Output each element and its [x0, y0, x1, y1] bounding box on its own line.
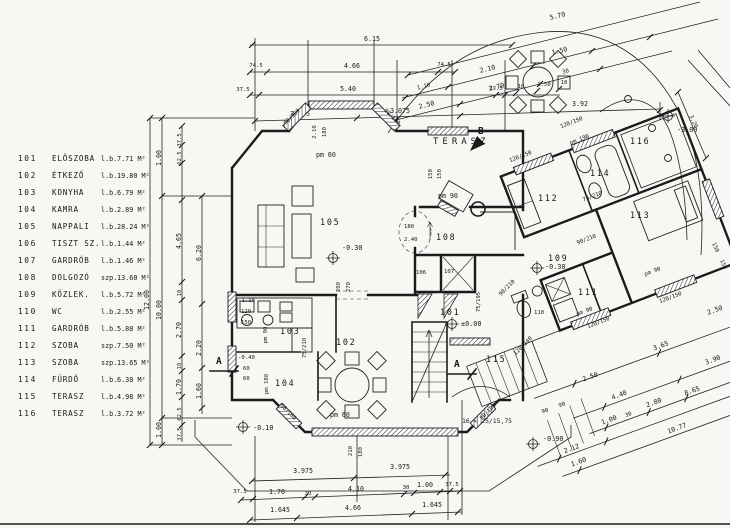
- dim-br: 2.80: [645, 396, 663, 409]
- window: [702, 179, 724, 219]
- room-label-114: 114: [590, 168, 611, 178]
- win-label: 2.10: [312, 125, 318, 138]
- dim-v-total: 12.00: [143, 290, 151, 310]
- legend-num: 104: [18, 205, 37, 214]
- window: [228, 292, 236, 322]
- dim-v: 37.5: [177, 427, 183, 440]
- legend-type: l.b.: [101, 223, 117, 231]
- legend-num: 114: [18, 375, 37, 384]
- room-label-108: 108: [436, 232, 457, 242]
- legend-area: 1.44 M²: [117, 240, 146, 248]
- chair: [510, 97, 527, 114]
- legend-type: l.b.: [101, 189, 117, 197]
- legend-num: 107: [18, 256, 37, 265]
- win-label: pm 60: [330, 411, 350, 419]
- dim-diag: 30: [562, 68, 570, 75]
- appliance: [258, 301, 270, 312]
- dim-top: 5.40: [340, 85, 356, 93]
- sink-bowl: [263, 315, 273, 325]
- dim-bot: 37.5: [445, 482, 458, 488]
- legend-num: 110: [18, 307, 37, 316]
- dim-br: 3.90: [704, 354, 722, 367]
- window: [312, 428, 458, 436]
- dim-v: 62.5: [177, 407, 183, 420]
- main-staircase: [412, 322, 447, 402]
- legend-type: l.b.: [101, 172, 117, 180]
- win-label: 180: [358, 447, 364, 457]
- section-mark-b: B: [478, 126, 484, 137]
- level-mid: -0.30: [545, 263, 565, 271]
- coffee-table: [292, 214, 311, 258]
- fence-post: [665, 155, 672, 162]
- level-symbol: [526, 437, 540, 451]
- dim-v: 1.60: [195, 383, 203, 399]
- legend-area: 3.72 M²: [117, 410, 146, 418]
- dim-br: 1.60: [570, 456, 588, 469]
- legend-num: 106: [18, 239, 37, 248]
- dim-v: 6.20: [195, 245, 203, 261]
- legend-name: KONYHA: [52, 188, 84, 197]
- fence-post: [625, 96, 632, 103]
- sofa: [258, 205, 284, 267]
- legend-type: l.b.: [101, 308, 117, 316]
- legend-name: NAPPALI: [52, 222, 90, 231]
- dim-bot: 4.66: [345, 504, 361, 512]
- room-label-107: 107: [444, 269, 454, 275]
- stair-note: 16 × 25/15,75: [462, 417, 512, 425]
- dim-bot: 1.00: [417, 481, 433, 489]
- room-legend: 101ELŐSZOBAl.b.7.71 M² 102ÉTKEZŐl.b.19.8…: [18, 154, 150, 418]
- legend-type: l.b.: [101, 240, 117, 248]
- dim-v: 1.00: [155, 422, 163, 438]
- legend-num: 103: [18, 188, 37, 197]
- win-label: 120: [241, 309, 251, 315]
- legend-type: l.b.: [101, 257, 117, 265]
- dim-v: 37.5: [177, 133, 183, 146]
- dim-br: 2.50: [581, 370, 599, 383]
- dim-bot: 1.645: [422, 501, 442, 509]
- dim-top: 37.5: [236, 87, 249, 93]
- room-label-103: 103: [280, 326, 301, 336]
- chair: [531, 51, 544, 63]
- legend-name: ÉTKEZŐ: [52, 171, 84, 180]
- legend-name: GARDRÓB: [52, 256, 90, 265]
- armchair: [296, 268, 314, 282]
- section-mark-a: A: [216, 356, 222, 367]
- legend-area: 5.72 M²: [117, 291, 146, 299]
- desk-108: [480, 212, 515, 250]
- dim-diag: 5.70: [549, 10, 566, 22]
- chair: [345, 352, 359, 365]
- room-label-109: 109: [548, 253, 569, 263]
- column: [471, 202, 485, 216]
- legend-area: 2.55 M²: [117, 308, 146, 316]
- door-label: 75/210: [302, 338, 308, 358]
- dim-br: 10.77: [666, 421, 687, 435]
- level-zero: ±0.00: [461, 320, 481, 328]
- dim-bot: 37.5: [233, 489, 246, 495]
- dim-br: 2.50: [706, 304, 724, 317]
- opening-label: 270: [346, 282, 352, 292]
- legend-type: szp.: [101, 342, 117, 350]
- level-window: -0.40: [238, 355, 255, 361]
- legend-type: l.b.: [101, 376, 117, 384]
- legend-area: 7.71 M²: [117, 155, 146, 163]
- level-window: -1.10: [238, 298, 255, 304]
- win-label: 60: [243, 376, 250, 382]
- legend-area: 6.79 M²: [117, 189, 146, 197]
- window: [228, 346, 236, 372]
- dim-bot: 1.70: [269, 488, 285, 496]
- dim-top: 10: [561, 80, 568, 86]
- dim-bot: 3.975: [390, 463, 410, 471]
- chair: [550, 97, 567, 114]
- round-table: [335, 368, 369, 402]
- dim-top: 74.5: [249, 63, 262, 69]
- dimension-chain-bottom-right: 3.65 3.90 3.90 4.40 2.80 8.65 1.00 30 2.…: [507, 259, 730, 486]
- legend-name: TISZT SZ.: [52, 239, 100, 248]
- dim-bot: 30: [403, 485, 410, 491]
- legend-type: szp.: [101, 274, 117, 282]
- dim-v: 4.65: [175, 233, 183, 249]
- legend-name: TERASZ: [52, 409, 84, 418]
- level-symbol: [530, 261, 544, 275]
- legend-area: 13.60 M²: [117, 274, 150, 282]
- chair: [506, 76, 518, 89]
- dim-opening: 180: [404, 224, 414, 230]
- legend-area: 4.98 M²: [117, 393, 146, 401]
- room-label-112: 112: [538, 193, 559, 203]
- dining-table-group: [317, 352, 386, 419]
- legend-area: 19.80 M²: [117, 172, 150, 180]
- sink: [280, 302, 292, 311]
- floor-plan-drawing: 101ELŐSZOBAl.b.7.71 M² 102ÉTKEZŐl.b.19.8…: [0, 0, 730, 528]
- legend-area: 2.89 M²: [117, 206, 146, 214]
- legend-num: 108: [18, 273, 37, 282]
- dim-v: 2.70: [175, 322, 183, 338]
- legend-name: KAMRA: [52, 205, 79, 214]
- dim-diag: 2.50: [418, 99, 435, 111]
- legend-type: l.b.: [101, 393, 117, 401]
- section-mark-a2-line: [448, 369, 476, 379]
- win-label: 150: [428, 169, 434, 179]
- chair: [531, 100, 544, 112]
- win-label: 120/150: [560, 116, 584, 130]
- legend-num: 113: [18, 358, 37, 367]
- floor-plan-sheet: 101ELŐSZOBAl.b.7.71 M² 102ÉTKEZŐl.b.19.8…: [0, 0, 730, 528]
- legend-num: 101: [18, 154, 37, 163]
- level-entry: -0.10: [253, 424, 273, 432]
- legend-area: 5.88 M²: [117, 325, 146, 333]
- chair: [510, 51, 527, 68]
- dim-v: 10: [177, 363, 183, 370]
- legend-type: l.b.: [101, 291, 117, 299]
- level-symbol: [326, 251, 340, 265]
- legend-type: l.b.: [101, 206, 117, 214]
- legend-num: 112: [18, 341, 37, 350]
- dim-bot: 4.10: [348, 485, 364, 493]
- dim-br: 90: [541, 407, 549, 415]
- legend-area: 6.30 M²: [117, 376, 146, 384]
- shelf: [553, 298, 578, 322]
- room-label-116: 116: [630, 136, 651, 146]
- door-label: pm 180: [264, 374, 270, 394]
- legend-num: 116: [18, 409, 37, 418]
- legend-num: 115: [18, 392, 37, 401]
- opening-label: 200: [336, 282, 342, 292]
- legend-type: szp.: [101, 359, 117, 367]
- door-leaf: [418, 294, 432, 318]
- dim-top: 4.66: [344, 62, 360, 70]
- level-living: -0.30: [342, 244, 362, 252]
- win-label: 60: [243, 366, 250, 372]
- sink: [280, 313, 292, 322]
- fence-post: [649, 125, 656, 132]
- legend-num: 111: [18, 324, 37, 333]
- room-label-102: 102: [336, 337, 357, 347]
- level-marks: [236, 109, 675, 451]
- dim-br: 90: [558, 401, 566, 409]
- legend-type: l.b.: [101, 155, 117, 163]
- legend-name: SZOBA: [52, 341, 79, 350]
- win-label: pm 90: [644, 266, 662, 278]
- window: [428, 127, 468, 135]
- legend-num: 102: [18, 171, 37, 180]
- entry-canopy: [452, 387, 510, 398]
- legend-name: WC: [52, 307, 63, 316]
- win-label: 150: [437, 169, 443, 179]
- room-label-105: 105: [320, 217, 341, 227]
- window: [309, 101, 374, 109]
- dim-bot: 3.975: [293, 467, 313, 475]
- door-label: 90/210: [576, 234, 597, 247]
- legend-name: SZOBA: [52, 358, 79, 367]
- chair: [368, 352, 386, 370]
- level-symbol: [236, 420, 250, 434]
- win-label: 180: [322, 127, 328, 137]
- dim-site: 150: [710, 242, 720, 254]
- arched-opening: [399, 211, 431, 253]
- legend-area: 13.65 M²: [117, 359, 150, 367]
- dim-br: 8.65: [683, 384, 701, 397]
- dim-top: 6.15: [364, 35, 380, 43]
- room-label-110: 110: [534, 310, 544, 316]
- legend-name: ELŐSZOBA: [52, 154, 95, 163]
- radiator: [450, 338, 490, 345]
- room-label-106: 106: [416, 270, 426, 276]
- dim-v: 62.5: [177, 151, 183, 164]
- chair: [318, 378, 331, 392]
- room-label-101: 101: [440, 307, 461, 317]
- chair: [373, 378, 386, 392]
- dim-opening: 2.40: [404, 237, 417, 243]
- chair: [317, 352, 335, 370]
- dim-br: 2.12: [563, 442, 581, 455]
- win-label: 210: [348, 446, 354, 456]
- legend-area: 28.24 M²: [117, 223, 150, 231]
- room-label-111: 111: [578, 287, 599, 297]
- level-site: -3.00: [677, 126, 697, 134]
- legend-area: 7.50 M²: [117, 342, 146, 350]
- legend-area: 1.46 M²: [117, 257, 146, 265]
- win-label: pm 60: [316, 151, 336, 159]
- dim-v: 1.70: [175, 379, 183, 395]
- dim-v: 10: [177, 290, 183, 297]
- room-label-115: 115: [486, 354, 507, 364]
- legend-name: DOLGOZÓ: [52, 273, 90, 282]
- dim-v: 2.20: [195, 340, 203, 356]
- door-label: 75/195: [476, 292, 482, 312]
- win-label: pm 90: [438, 192, 458, 200]
- dim-v: 1.00: [155, 150, 163, 166]
- furniture-living-room: [258, 181, 515, 282]
- legend-type: l.b.: [101, 410, 117, 418]
- chair: [368, 401, 386, 419]
- legend-type: l.b.: [101, 325, 117, 333]
- dim-top: 3.92: [572, 100, 588, 108]
- dim-v: 10.00: [155, 300, 163, 320]
- armchair: [292, 186, 313, 206]
- dim-diag: 2.10: [479, 63, 496, 75]
- win-label: pm 90: [263, 327, 269, 344]
- dim-bot: 1.645: [270, 506, 290, 514]
- legend-name: FÜRDŐ: [52, 375, 79, 384]
- legend-num: 105: [18, 222, 37, 231]
- room-label-113: 113: [630, 210, 651, 220]
- section-mark-a2: A: [454, 359, 460, 370]
- legend-name: TERASZ: [52, 392, 84, 401]
- dimension-chain-left: 12.00 1.00 10.00 1.00 37.5 62.5 4.65 10 …: [143, 115, 255, 448]
- dim-bot: 30: [305, 491, 312, 497]
- room-label-104: 104: [275, 378, 296, 388]
- legend-num: 109: [18, 290, 37, 299]
- legend-name: GARDRÓB: [52, 324, 90, 333]
- win-label: 150: [241, 320, 251, 326]
- legend-name: KÖZLEK.: [52, 290, 90, 299]
